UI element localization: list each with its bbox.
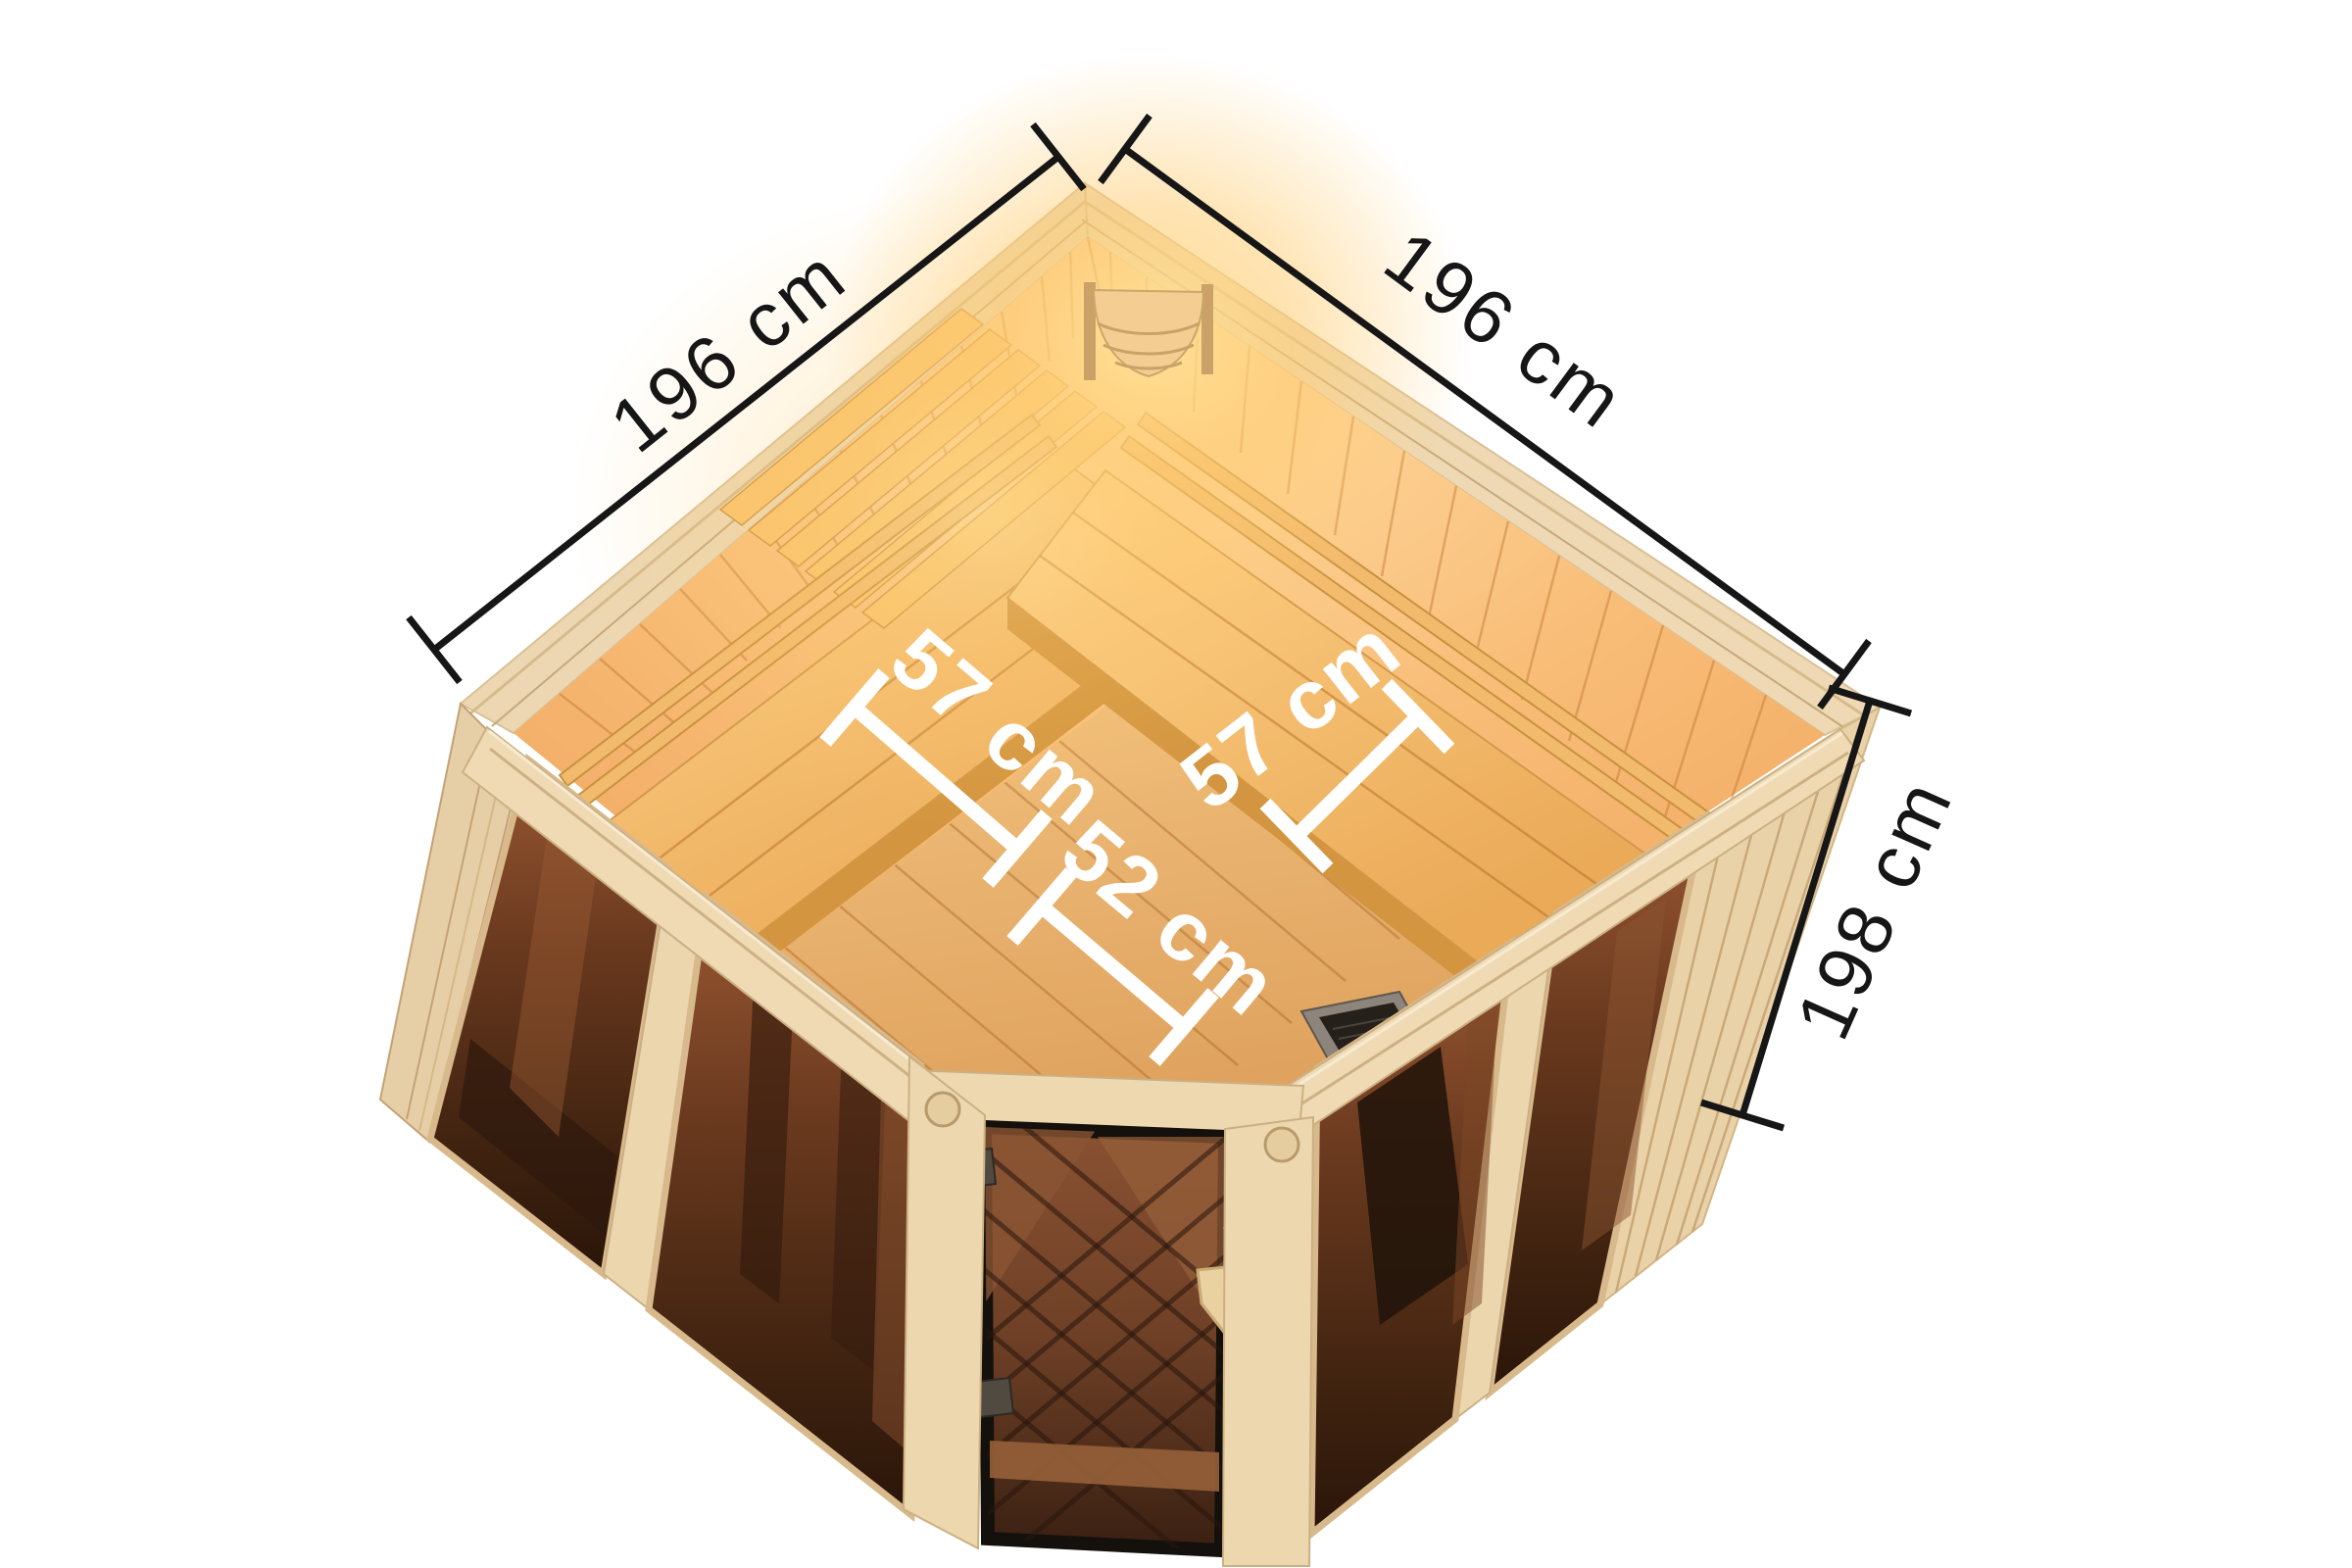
dowel-cap-right <box>1265 1128 1298 1161</box>
sauna-illustration: 196 cm 196 cm 198 cm 57 cm 57 cm 52 cm <box>0 0 2352 1568</box>
door-post-left <box>904 1056 985 1548</box>
door-post-right <box>1223 1117 1313 1566</box>
product-dimension-image: 196 cm 196 cm 198 cm 57 cm 57 cm 52 cm <box>0 0 2352 1568</box>
dowel-cap-left <box>926 1093 959 1126</box>
